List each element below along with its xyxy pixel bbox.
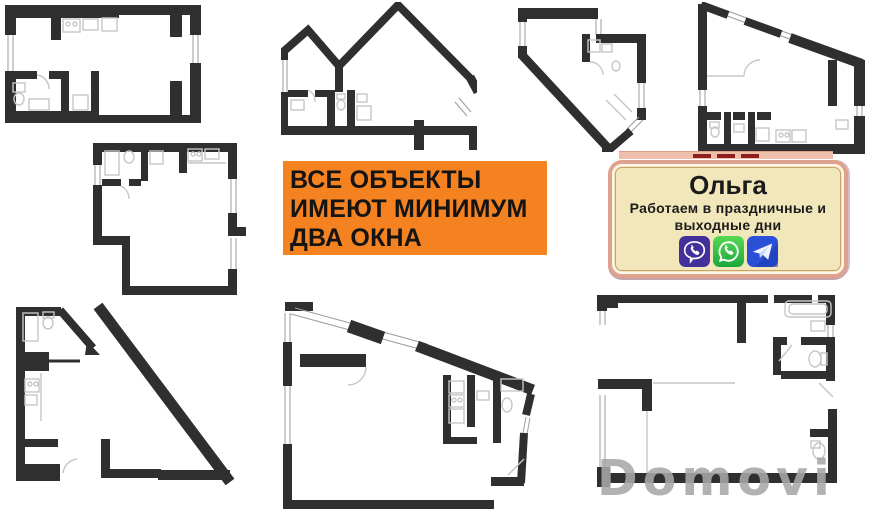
banner-line-3: ДВА ОКНА: [290, 224, 547, 253]
floor-plan-bottom-left: [3, 303, 235, 509]
real-estate-collage: ВСЕ ОБЪЕКТЫ ИМЕЮТ МИНИМУМ ДВА ОКНА Ольга…: [0, 0, 888, 512]
card-subtitle-line-1: Работаем в праздничные и: [630, 200, 827, 217]
telegram-icon[interactable]: [747, 236, 778, 267]
banner-min-two-windows: ВСЕ ОБЪЕКТЫ ИМЕЮТ МИНИМУМ ДВА ОКНА: [283, 161, 547, 255]
floor-plan-top-left: [5, 5, 201, 123]
floor-plan-middle-left: [93, 143, 247, 295]
agent-name: Ольга: [689, 171, 767, 200]
floor-plan-top-right: [688, 2, 884, 154]
banner-line-2: ИМЕЮТ МИНИМУМ: [290, 195, 547, 224]
contact-card: Ольга Работаем в праздничные и выходные …: [608, 160, 848, 278]
card-top-remnant: [619, 151, 833, 159]
whatsapp-icon[interactable]: [713, 236, 744, 267]
card-subtitle-line-2: выходные дни: [675, 217, 782, 234]
contact-card-inner: Ольга Работаем в праздничные и выходные …: [612, 164, 844, 274]
banner-line-1: ВСЕ ОБЪЕКТЫ: [290, 166, 547, 195]
messenger-icons-row: [679, 236, 778, 267]
viber-icon[interactable]: [679, 236, 710, 267]
floor-plan-top-center-right: [518, 8, 648, 162]
watermark: Domovi: [597, 454, 888, 504]
floor-plan-bottom-middle: [283, 301, 535, 509]
floor-plan-top-middle: [281, 2, 477, 152]
